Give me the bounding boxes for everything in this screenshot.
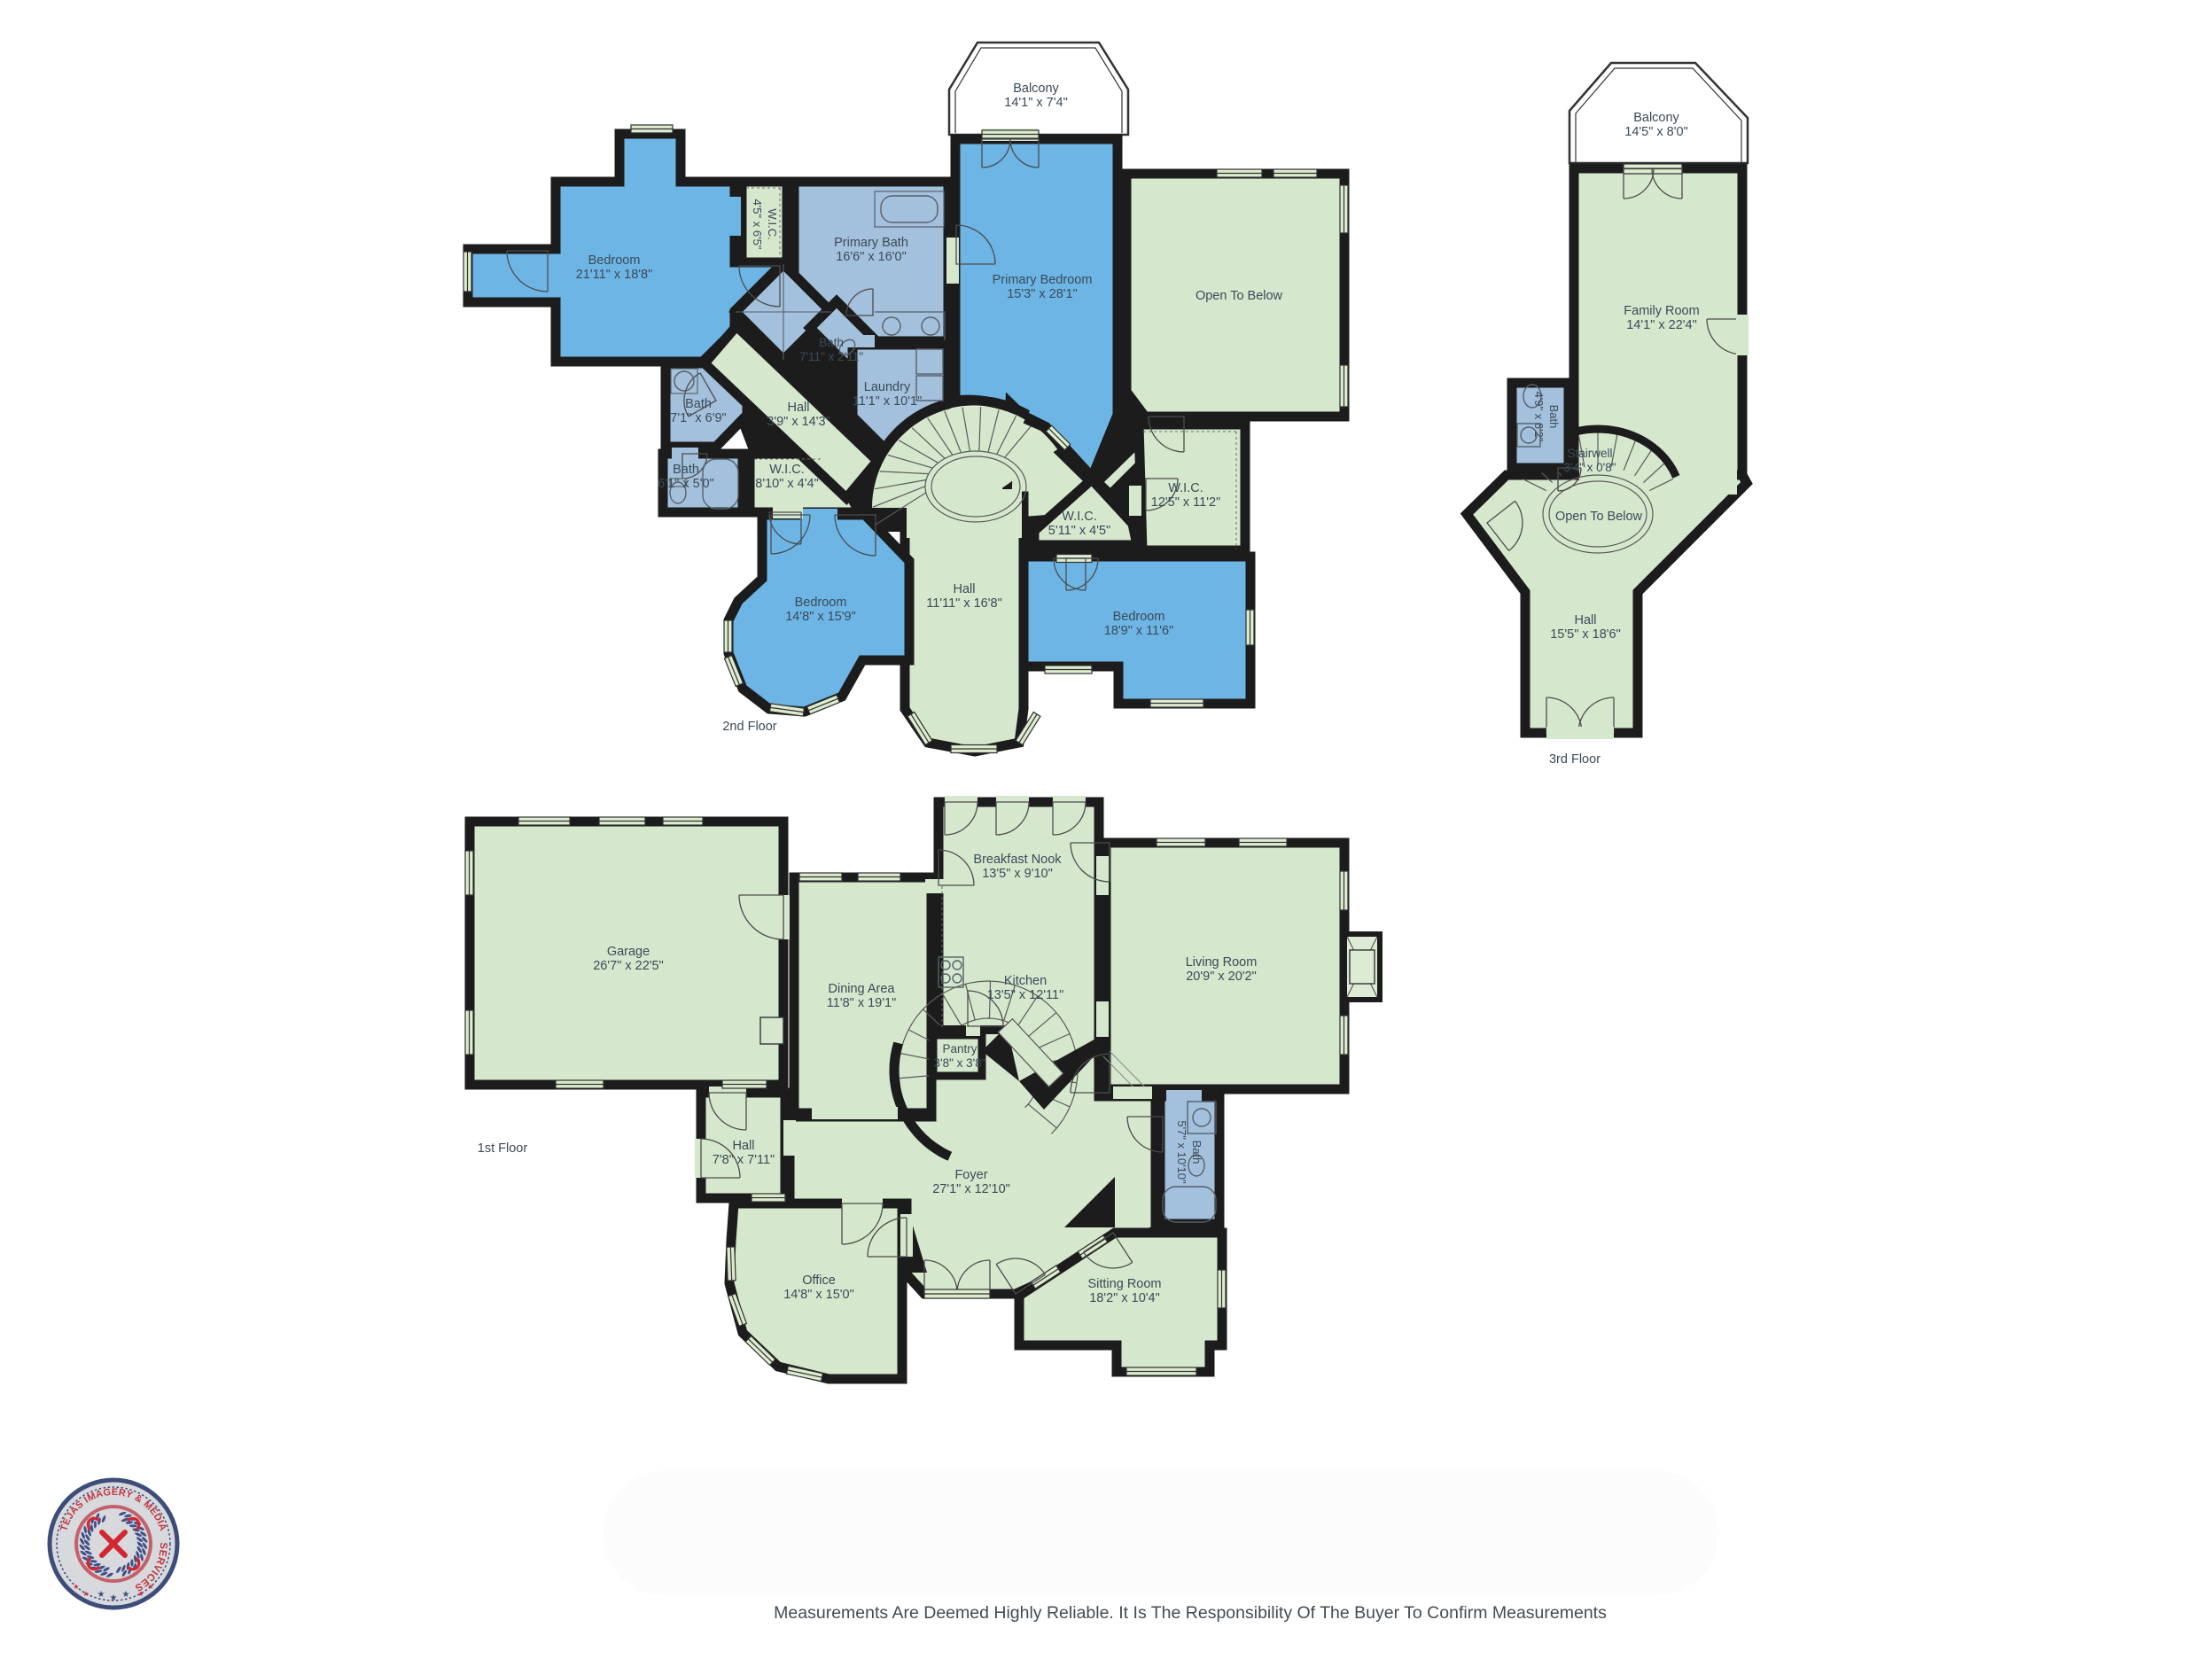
svg-text:Primary Bath: Primary Bath: [834, 236, 908, 250]
svg-text:★: ★: [73, 1583, 79, 1591]
svg-text:Bedroom: Bedroom: [588, 253, 641, 268]
svg-text:Bath: Bath: [1547, 405, 1561, 429]
svg-text:Open To Below: Open To Below: [1196, 289, 1283, 303]
svg-text:14'1" x 22'4": 14'1" x 22'4": [1626, 318, 1697, 332]
svg-text:★: ★: [110, 1593, 118, 1603]
svg-text:Kitchen: Kitchen: [1004, 974, 1047, 988]
svg-text:Hall: Hall: [1575, 613, 1597, 627]
svg-text:Living Room: Living Room: [1186, 955, 1258, 970]
svg-text:Bath: Bath: [685, 397, 712, 411]
svg-text:Stairwell: Stairwell: [1567, 447, 1612, 460]
svg-text:18'2" x 10'4": 18'2" x 10'4": [1089, 1291, 1160, 1305]
svg-text:5'11" x 4'5": 5'11" x 4'5": [1048, 524, 1110, 538]
svg-text:7'1" x 6'9": 7'1" x 6'9": [670, 411, 726, 425]
svg-text:Laundry: Laundry: [864, 380, 911, 394]
svg-text:Bath: Bath: [673, 463, 699, 477]
svg-text:1st Floor: 1st Floor: [478, 1141, 528, 1156]
svg-text:18'9" x 11'6": 18'9" x 11'6": [1104, 624, 1173, 638]
svg-text:14'8" x 15'0": 14'8" x 15'0": [783, 1288, 854, 1302]
svg-text:Measurements Are Deemed Highly: Measurements Are Deemed Highly Reliable.…: [774, 1603, 1607, 1623]
svg-text:14'5" x 8'0": 14'5" x 8'0": [1624, 125, 1687, 139]
svg-text:Hall: Hall: [954, 582, 976, 596]
svg-text:11'8" x 19'1": 11'8" x 19'1": [827, 996, 896, 1010]
svg-text:Hall: Hall: [788, 401, 810, 415]
svg-text:Bedroom: Bedroom: [795, 596, 847, 610]
svg-text:W.I.C.: W.I.C.: [1168, 481, 1203, 495]
svg-text:Garage: Garage: [607, 945, 650, 959]
svg-text:20'9" x 20'2": 20'9" x 20'2": [1186, 970, 1257, 984]
svg-text:4'5" x 6'5": 4'5" x 6'5": [751, 199, 764, 250]
svg-text:3'9" x 14'3": 3'9" x 14'3": [767, 415, 829, 429]
svg-text:3'8" x 3'8": 3'8" x 3'8": [933, 1056, 985, 1070]
svg-text:11'11" x 16'8": 11'11" x 16'8": [926, 596, 1001, 611]
svg-text:2nd Floor: 2nd Floor: [722, 720, 776, 734]
svg-text:11'1" x 10'1": 11'1" x 10'1": [853, 394, 922, 409]
svg-text:8'10" x 4'4": 8'10" x 4'4": [755, 477, 818, 491]
svg-text:7'8" x 7'11": 7'8" x 7'11": [713, 1153, 775, 1167]
svg-text:3'4" x 0'8": 3'4" x 0'8": [1563, 461, 1616, 474]
svg-text:W.I.C.: W.I.C.: [769, 463, 804, 477]
svg-text:7'11" x 2'11": 7'11" x 2'11": [799, 350, 863, 363]
svg-text:Primary Bedroom: Primary Bedroom: [993, 273, 1093, 287]
svg-text:★: ★: [97, 1590, 105, 1600]
svg-text:6'1" x 5'0": 6'1" x 5'0": [658, 477, 713, 491]
svg-text:16'6" x 16'0": 16'6" x 16'0": [836, 250, 907, 264]
svg-text:14'1" x 7'4": 14'1" x 7'4": [1004, 96, 1067, 110]
svg-text:4'9" x 6'2": 4'9" x 6'2": [1532, 392, 1546, 442]
svg-text:W.I.C.: W.I.C.: [1062, 510, 1096, 524]
svg-text:Balcony: Balcony: [1633, 111, 1679, 125]
svg-text:Balcony: Balcony: [1013, 82, 1059, 96]
svg-text:5'7" x 10'10": 5'7" x 10'10": [1175, 1120, 1188, 1184]
svg-text:Hall: Hall: [733, 1139, 755, 1153]
svg-text:13'5" x 12'11": 13'5" x 12'11": [987, 988, 1064, 1002]
svg-text:26'7" x 22'5": 26'7" x 22'5": [593, 959, 664, 973]
svg-text:3rd Floor: 3rd Floor: [1549, 752, 1601, 767]
svg-text:21'11" x 18'8": 21'11" x 18'8": [576, 268, 653, 282]
svg-text:Bedroom: Bedroom: [1113, 610, 1165, 624]
svg-text:14'8" x 15'9": 14'8" x 15'9": [785, 610, 856, 624]
svg-text:Dining Area: Dining Area: [829, 982, 896, 996]
svg-text:Sitting Room: Sitting Room: [1087, 1277, 1161, 1291]
svg-text:★: ★: [122, 1590, 130, 1600]
svg-text:Open To Below: Open To Below: [1555, 510, 1643, 524]
svg-text:13'5" x 9'10": 13'5" x 9'10": [982, 867, 1053, 881]
svg-text:27'1" x 12'10": 27'1" x 12'10": [932, 1182, 1010, 1196]
svg-text:Pantry: Pantry: [942, 1042, 977, 1055]
svg-text:Bath: Bath: [819, 336, 844, 349]
svg-text:★: ★: [147, 1583, 153, 1591]
svg-text:★: ★: [137, 1590, 144, 1598]
svg-text:Bath: Bath: [1190, 1141, 1203, 1164]
svg-text:Family Room: Family Room: [1624, 304, 1699, 318]
svg-text:Office: Office: [802, 1273, 836, 1288]
svg-text:★: ★: [82, 1590, 89, 1598]
svg-text:Breakfast Nook: Breakfast Nook: [973, 853, 1062, 867]
svg-text:15'5" x 18'6": 15'5" x 18'6": [1550, 627, 1621, 642]
svg-text:15'3" x 28'1": 15'3" x 28'1": [1007, 287, 1078, 301]
svg-text:12'5" x 11'2": 12'5" x 11'2": [1151, 495, 1220, 510]
svg-text:Foyer: Foyer: [954, 1168, 987, 1182]
svg-text:W.I.C.: W.I.C.: [766, 208, 779, 239]
